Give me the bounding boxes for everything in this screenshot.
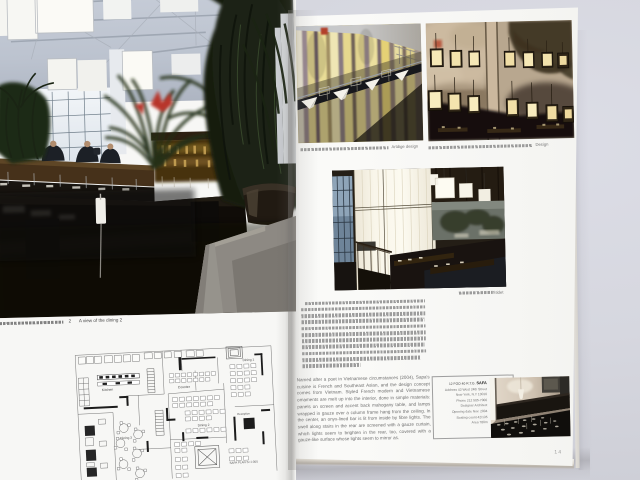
svg-text:Dining 1: Dining 1 bbox=[242, 358, 254, 363]
svg-text:Dining 3: Dining 3 bbox=[120, 436, 132, 441]
svg-text:Kitchen: Kitchen bbox=[102, 388, 114, 393]
svg-text:Dining 2: Dining 2 bbox=[198, 423, 210, 428]
svg-text:SAFA PLAN S=1:300: SAFA PLAN S=1:300 bbox=[230, 460, 259, 465]
svg-text:Reception: Reception bbox=[237, 411, 250, 416]
svg-text:Counter: Counter bbox=[178, 385, 191, 390]
